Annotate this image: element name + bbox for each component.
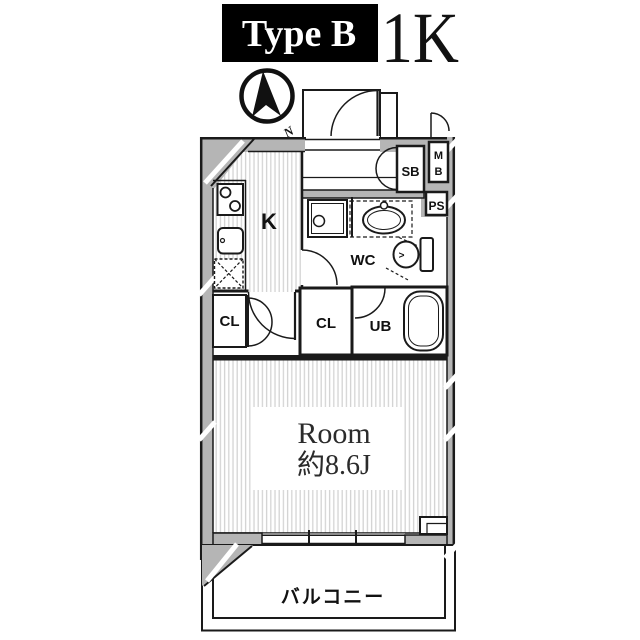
kitchen-sink-icon <box>218 228 243 254</box>
unit-bath-box <box>352 287 447 355</box>
pipe-space-label: PS <box>428 199 444 213</box>
closet-center-label: CL <box>316 315 336 332</box>
toilet-mark: > <box>399 251 405 262</box>
plan-header: Type B 1K <box>222 0 459 78</box>
bathtub-icon <box>404 292 443 351</box>
unit-type-label: 1K <box>381 0 459 78</box>
washing-machine-icon <box>308 200 347 237</box>
refrigerator-space <box>215 259 244 288</box>
floorplan-canvas: Type B 1K N <box>0 0 640 640</box>
room-size-label: 約8.6J <box>297 449 371 481</box>
meter-box-door <box>431 113 449 139</box>
unit-bath-label: UB <box>370 318 392 335</box>
kitchen-label: K <box>261 209 277 234</box>
compass-icon: N <box>242 71 298 142</box>
type-label: Type B <box>242 13 356 55</box>
meter-box-label-m: M <box>434 150 443 162</box>
meter-box-label-b: B <box>435 166 443 178</box>
wc-label: WC <box>351 252 376 269</box>
room-name-label: Room <box>297 417 370 450</box>
stove-icon <box>218 184 244 215</box>
balcony-label: バルコニー <box>281 586 386 608</box>
shoe-box-label: SB <box>401 164 419 179</box>
closet-left-label: CL <box>220 313 240 330</box>
floorplan-page: Type B 1K N <box>0 0 640 640</box>
hall-floor <box>246 292 302 360</box>
entrance-door <box>303 90 397 138</box>
room-corner-box <box>420 517 447 534</box>
